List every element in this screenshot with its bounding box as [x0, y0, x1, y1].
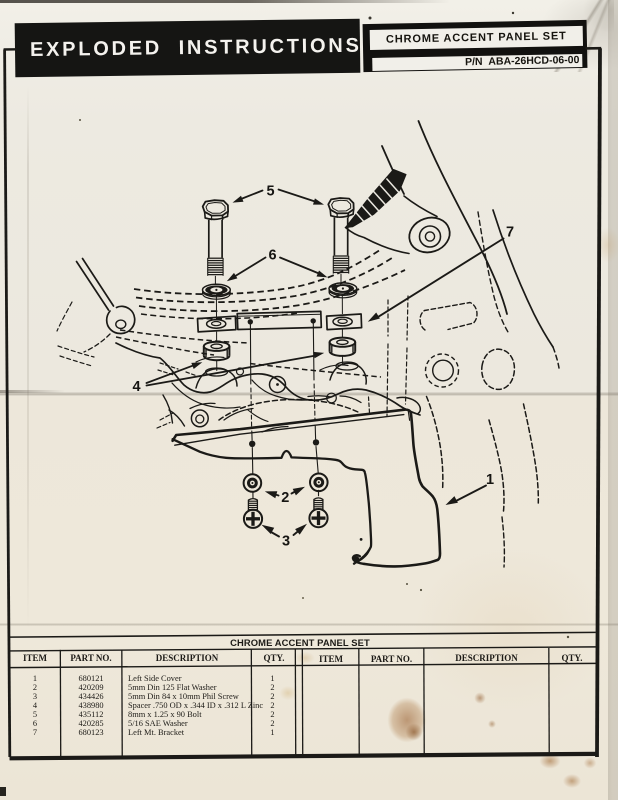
- svg-text:2: 2: [281, 490, 289, 506]
- svg-text:5: 5: [266, 184, 274, 200]
- svg-text:3: 3: [282, 534, 290, 550]
- svg-text:7: 7: [506, 225, 514, 241]
- svg-text:6: 6: [268, 248, 276, 264]
- svg-text:4: 4: [132, 379, 140, 395]
- svg-text:1: 1: [486, 472, 494, 488]
